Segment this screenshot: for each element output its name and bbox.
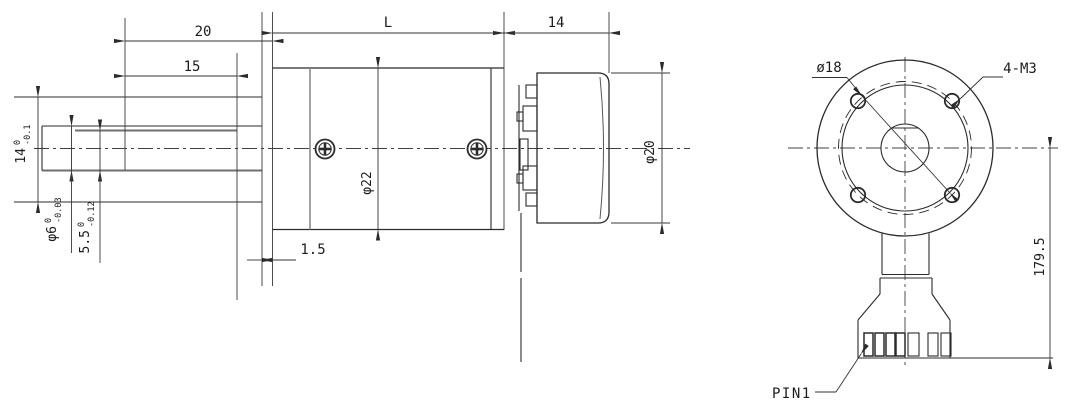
dim-flat-length: 15 [125, 59, 237, 76]
dim-motor-diameter: φ20 [611, 73, 670, 223]
dim-connector-distance-text: 179.5 [1033, 237, 1048, 276]
dim-bolt-circle: ø18 [812, 60, 950, 193]
dim-front-plate-text: 1.5 [300, 242, 325, 258]
dim-flat-height: 5.5 0 -0.12 [77, 131, 100, 264]
screw-icon [316, 140, 335, 159]
dim-connector-distance: 179.5 [1033, 148, 1050, 358]
dim-shaft-diameter-text: φ6 [45, 226, 60, 242]
dim-mounting-holes-text: 4-M3 [1003, 61, 1037, 77]
dim-boss-diameter: 14 0 -0.1 [13, 97, 38, 202]
dim-boss-diameter-tol-upper: 0 [13, 140, 23, 145]
dim-flat-height-tol-upper: 0 [77, 222, 87, 227]
dim-shaft-diameter: φ6 0 -0.03 [44, 126, 72, 253]
screw-icon [468, 140, 487, 159]
pin1-label-text: PIN1 [772, 386, 812, 402]
dim-mounting-holes: 4-M3 [960, 61, 1037, 99]
pin-row [864, 333, 951, 356]
dim-flat-height-text: 5.5 [78, 230, 93, 253]
motor-endcap [517, 85, 537, 211]
dim-boss-diameter-text: 14 [14, 148, 29, 164]
dim-shaft-diameter-tol-upper: 0 [44, 218, 54, 223]
dim-motor-diameter-text: φ20 [643, 140, 658, 163]
pin1-label: PIN1 [772, 354, 861, 402]
dim-front-plate: 1.5 [247, 242, 326, 260]
gear-motor-drawing: 20 15 L 14 14 0 -0.1 [0, 0, 1089, 419]
dim-gearbox-length-text: L [384, 15, 392, 31]
dim-motor-length: 14 [504, 15, 609, 33]
front-view: ø18 4-M3 [772, 57, 1058, 402]
dim-flat-height-tol-lower: -0.12 [87, 201, 97, 227]
motor-can [537, 73, 609, 223]
technical-drawing-canvas: 20 15 L 14 14 0 -0.1 [0, 0, 1089, 419]
connector [858, 234, 1053, 359]
motor-can-crimp-arc [600, 77, 604, 219]
dim-gearbox-length: L [273, 15, 505, 33]
dim-flat-length-text: 15 [184, 59, 201, 75]
dim-bolt-circle-text: ø18 [816, 60, 841, 76]
side-view: 20 15 L 14 14 0 -0.1 [13, 12, 690, 362]
dim-motor-length-text: 14 [548, 15, 565, 31]
dim-shaft-diameter-tol-lower: -0.03 [54, 197, 64, 223]
dim-shaft-length: 20 [125, 24, 273, 41]
dim-shaft-length-text: 20 [195, 24, 212, 40]
dim-gearbox-diameter-text: φ22 [360, 171, 375, 194]
dim-boss-diameter-tol-lower: -0.1 [23, 125, 33, 145]
